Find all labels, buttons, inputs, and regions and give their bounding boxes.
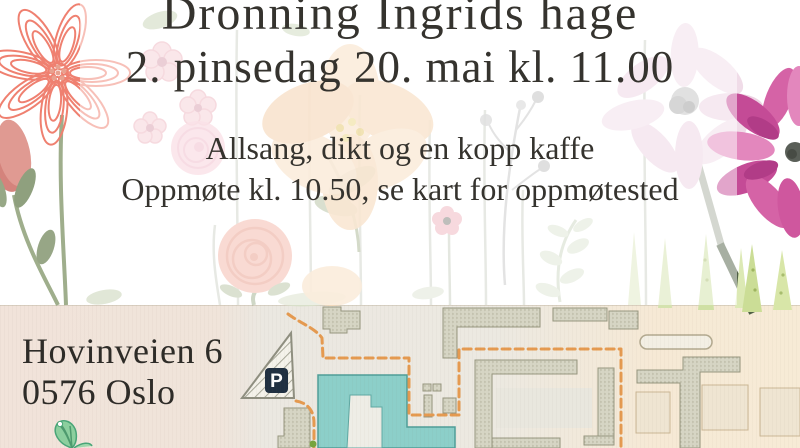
event-description: Allsang, dikt og en kopp kaffe bbox=[0, 130, 800, 167]
butterfly-icon bbox=[48, 418, 94, 448]
map: P Hovinveien 6 0576 Oslo bbox=[0, 305, 800, 448]
event-title: Dronning Ingrids hage bbox=[0, 0, 800, 41]
parking-sign-label: P bbox=[270, 371, 283, 392]
map-buildings-light bbox=[636, 385, 800, 436]
meeting-info: Oppmøte kl. 10.50, se kart for oppmøtest… bbox=[0, 171, 800, 208]
address-city: 0576 Oslo bbox=[22, 372, 223, 413]
event-date: 2. pinsedag 20. mai kl. 11.00 bbox=[0, 41, 800, 93]
map-courtyard bbox=[496, 388, 592, 428]
event-poster: Dronning Ingrids hage 2. pinsedag 20. ma… bbox=[0, 0, 800, 448]
address-block: Hovinveien 6 0576 Oslo bbox=[22, 331, 223, 413]
poster-text: Dronning Ingrids hage 2. pinsedag 20. ma… bbox=[0, 0, 800, 305]
map-road-loop bbox=[640, 335, 712, 349]
address-street: Hovinveien 6 bbox=[22, 331, 223, 372]
route-marker-dot bbox=[310, 441, 317, 448]
